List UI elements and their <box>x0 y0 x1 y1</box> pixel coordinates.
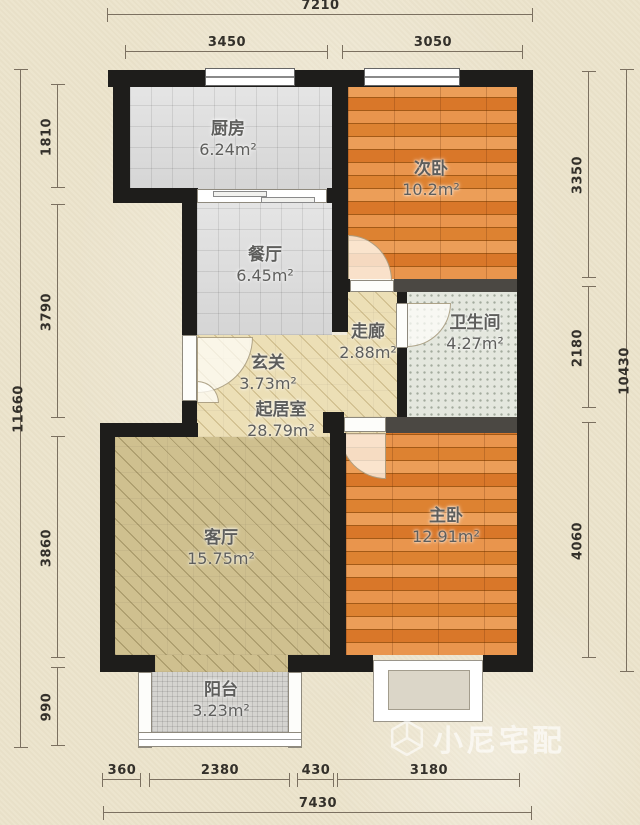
dim-right-seg-1: 3350 <box>588 72 589 278</box>
dim-right-seg-3: 4060 <box>588 423 589 658</box>
wall <box>483 655 533 672</box>
dim-bottom-seg-2: 2380 <box>150 779 290 780</box>
room-name: 卫生间 <box>405 312 545 334</box>
dim-left-overall: 11660 <box>20 70 21 748</box>
room-label-dining: 餐厅 6.45m² <box>195 244 335 286</box>
room-name: 主卧 <box>376 505 516 527</box>
room-name: 餐厅 <box>195 244 335 266</box>
room-area: 15.75m² <box>151 549 291 569</box>
watermark-text: 小尼宅配 <box>433 716 565 760</box>
dim-bottom-seg-4: 3180 <box>338 779 520 780</box>
watermark: 小尼宅配 <box>388 716 565 760</box>
wall-bathroom-top <box>394 279 517 292</box>
wall <box>100 423 115 670</box>
room-area: 10.2m² <box>361 180 501 200</box>
room-area: 28.79m² <box>211 421 351 441</box>
room-name: 阳台 <box>151 679 291 701</box>
room-label-hall: 起居室 28.79m² <box>211 399 351 441</box>
bay-window-panel <box>388 670 470 710</box>
room-area: 3.23m² <box>151 701 291 721</box>
wall-master-top <box>386 417 517 433</box>
room-name: 起居室 <box>211 399 351 421</box>
dim-right-seg-2: 2180 <box>588 287 589 408</box>
room-area: 3.73m² <box>198 374 338 394</box>
dim-left-seg-3: 3860 <box>57 437 58 658</box>
entry-door-frame <box>182 335 197 401</box>
wall-living-master-divider <box>330 433 346 672</box>
dim-right-overall: 10430 <box>626 70 627 672</box>
master-bay-window <box>373 660 483 722</box>
dim-left-seg-4: 990 <box>57 668 58 746</box>
kitchen-sliding-door <box>197 189 327 203</box>
room-name: 厨房 <box>158 118 298 140</box>
dim-bottom-seg-3: 430 <box>298 779 334 780</box>
room-name: 次卧 <box>361 158 501 180</box>
room-area: 12.91m² <box>376 527 516 547</box>
wall <box>113 70 130 203</box>
wall <box>332 70 348 332</box>
dim-top-overall: 7210 <box>108 14 533 15</box>
second-bedroom-window <box>364 68 460 86</box>
dim-bottom-seg-1: 360 <box>103 779 141 780</box>
room-label-master-bedroom: 主卧 12.91m² <box>376 505 516 547</box>
dim-bottom-overall: 7430 <box>104 812 532 813</box>
room-label-second-bedroom: 次卧 10.2m² <box>361 158 501 200</box>
room-name: 客厅 <box>151 527 291 549</box>
room-area: 6.24m² <box>158 140 298 160</box>
room-area: 4.27m² <box>405 334 545 354</box>
balcony-railing-window <box>138 732 302 747</box>
dim-top-seg-2: 3050 <box>343 51 523 52</box>
room-label-kitchen: 厨房 6.24m² <box>158 118 298 160</box>
wall <box>517 70 533 672</box>
cube-logo-icon <box>388 719 426 757</box>
dim-left-seg-2: 3790 <box>57 205 58 418</box>
room-area: 6.45m² <box>195 266 335 286</box>
wall <box>100 655 155 672</box>
floor-plan: 厨房 6.24m² 次卧 10.2m² 餐厅 6.45m² 走廊 2.88m² … <box>0 0 640 825</box>
room-label-balcony: 阳台 3.23m² <box>151 679 291 721</box>
wall <box>108 70 533 87</box>
room-name: 玄关 <box>198 352 338 374</box>
second-bedroom-door <box>350 280 394 292</box>
dim-left-seg-1: 1810 <box>57 85 58 188</box>
room-label-bathroom: 卫生间 4.27m² <box>405 312 545 354</box>
kitchen-window <box>205 68 295 86</box>
room-label-living: 客厅 15.75m² <box>151 527 291 569</box>
dim-top-seg-1: 3450 <box>126 51 328 52</box>
room-floor-living-ext <box>155 655 288 672</box>
room-label-entry: 玄关 3.73m² <box>198 352 338 394</box>
